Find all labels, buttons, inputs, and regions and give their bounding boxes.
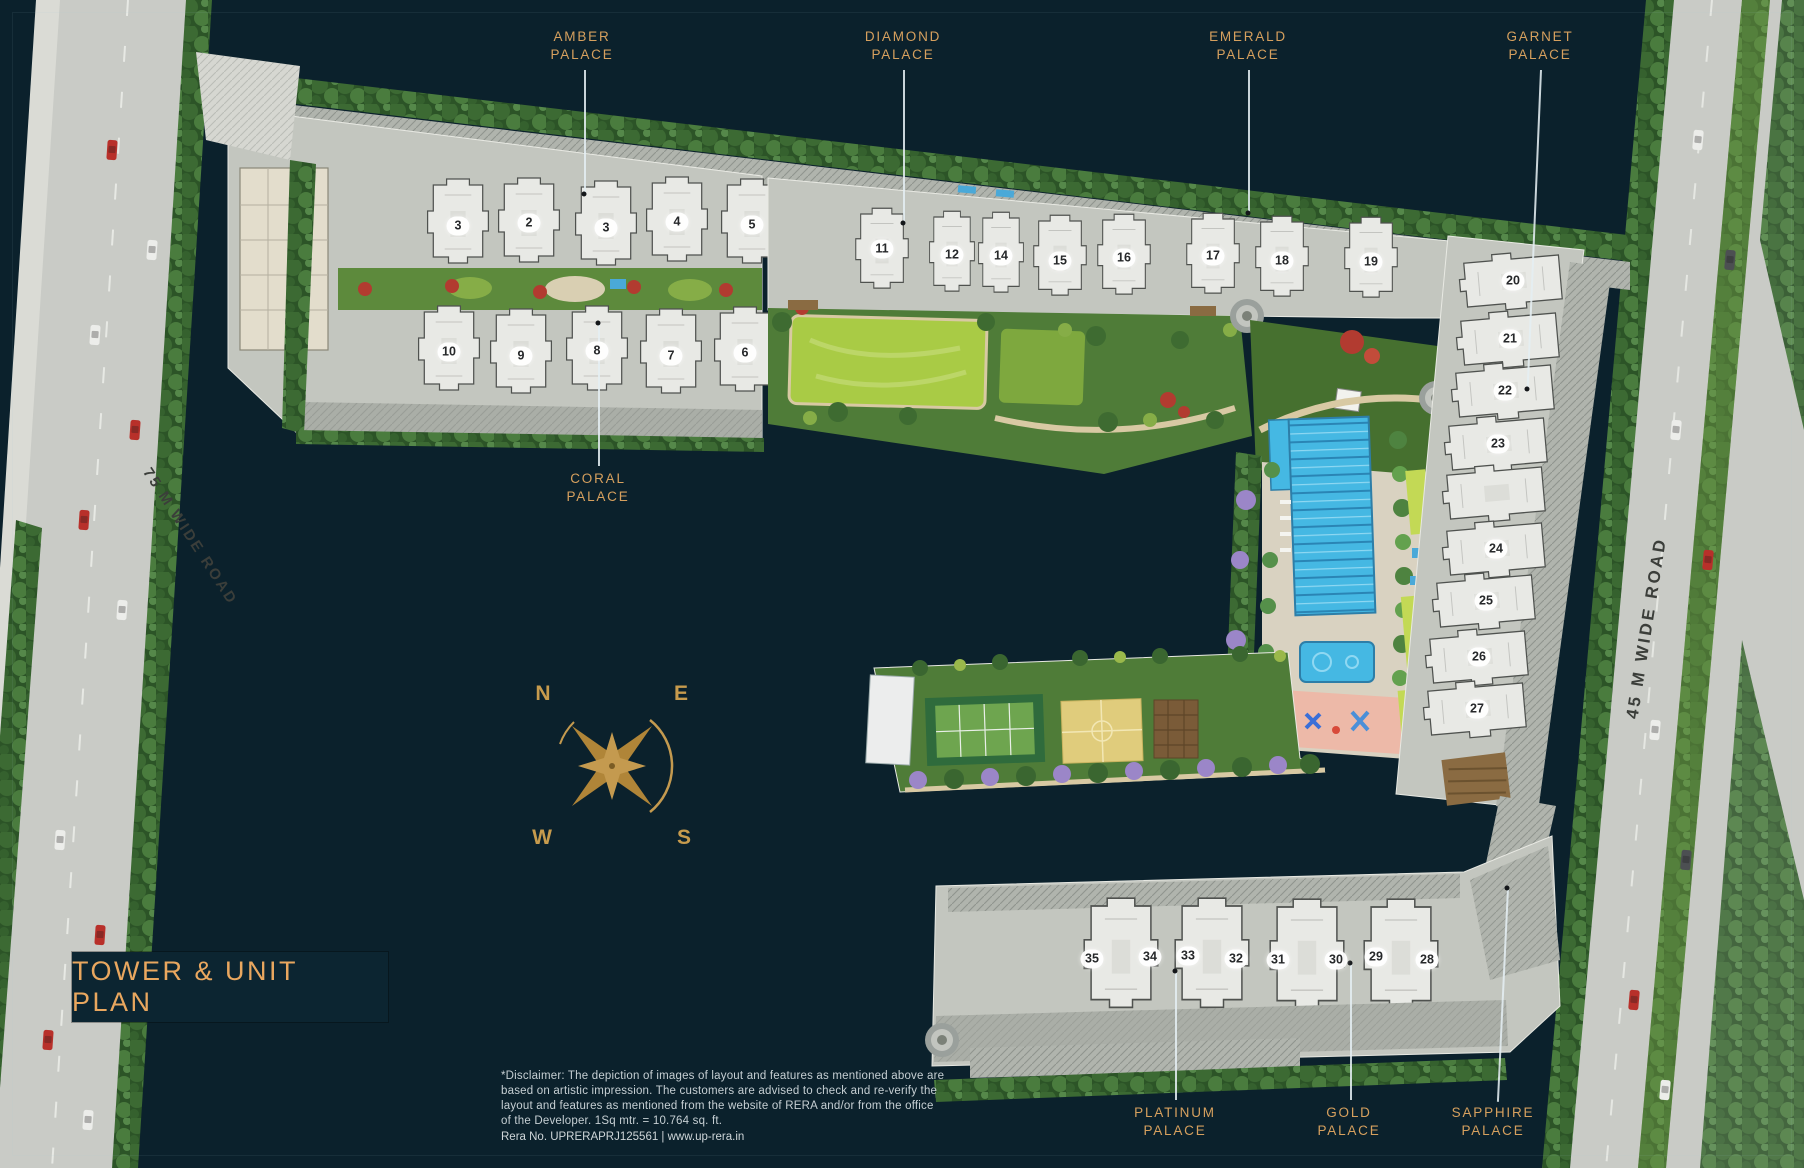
tower-number-badge: 5	[741, 216, 764, 235]
palace-type: PALACE	[1506, 46, 1573, 64]
compass-rose	[560, 720, 672, 812]
palace-label-diamond: DIAMOND PALACE	[865, 28, 941, 63]
palace-label-sapphire: SAPPHIRE PALACE	[1452, 1104, 1535, 1139]
leader-dot-sapphire	[1505, 886, 1510, 891]
tower-number-badge: 26	[1468, 648, 1491, 667]
palace-type: PALACE	[550, 46, 613, 64]
palace-name: CORAL	[566, 470, 629, 488]
tower-number-badge: 25	[1475, 592, 1498, 611]
leader-line-emerald	[1248, 70, 1250, 212]
leader-line-diamond	[903, 70, 905, 222]
site-plan-poster: AMBER PALACE DIAMOND PALACE EMERALD PALA…	[0, 0, 1804, 1168]
leader-dot-diamond	[901, 221, 906, 226]
tower-number-badge: 12	[941, 246, 964, 265]
tower-number-badge: 6	[734, 344, 757, 363]
palace-name: PLATINUM	[1134, 1104, 1216, 1122]
tower-number-badge: 23	[1487, 435, 1510, 454]
tower-number-badge: 15	[1049, 252, 1072, 271]
tower-number-badge: 24	[1485, 540, 1508, 559]
east-road-graphic	[1542, 0, 1804, 1168]
tower-number-badge: 3	[447, 217, 470, 236]
leader-line-platinum	[1175, 972, 1177, 1100]
palace-name: EMERALD	[1209, 28, 1287, 46]
tower-number-badge: 30	[1325, 951, 1348, 970]
palace-label-gold: GOLD PALACE	[1317, 1104, 1380, 1139]
tower-number-badge: 20	[1502, 272, 1525, 291]
palace-label-emerald: EMERALD PALACE	[1209, 28, 1287, 63]
leader-dot-garnet	[1525, 387, 1530, 392]
tower-number-badge: 14	[990, 247, 1013, 266]
palace-type: PALACE	[1209, 46, 1287, 64]
palace-label-amber: AMBER PALACE	[550, 28, 613, 63]
palace-type: PALACE	[1134, 1122, 1216, 1140]
palace-type: PALACE	[1452, 1122, 1535, 1140]
palace-name: GARNET	[1506, 28, 1573, 46]
tower-number-badge: 4	[666, 213, 689, 232]
tower-number-badge: 28	[1416, 951, 1439, 970]
tower-number-badge: 33	[1177, 947, 1200, 966]
rera-registration-text: Rera No. UPRERAPRJ125561 | www.up-rera.i…	[501, 1131, 744, 1143]
page-title: TOWER & UNIT PLAN	[72, 956, 388, 1018]
disclaimer-line: *Disclaimer: The depiction of images of …	[501, 1069, 944, 1084]
tower-number-badge: 27	[1466, 700, 1489, 719]
palace-name: GOLD	[1317, 1104, 1380, 1122]
palace-name: SAPPHIRE	[1452, 1104, 1535, 1122]
palace-name: DIAMOND	[865, 28, 941, 46]
tower-number-badge: 21	[1499, 330, 1522, 349]
tower-number-badge: 16	[1113, 249, 1136, 268]
palace-label-platinum: PLATINUM PALACE	[1134, 1104, 1216, 1139]
palace-label-garnet: GARNET PALACE	[1506, 28, 1573, 63]
leader-line-gold	[1350, 964, 1352, 1100]
palace-type: PALACE	[1317, 1122, 1380, 1140]
tower-number-badge: 8	[586, 342, 609, 361]
leader-dot-platinum	[1173, 969, 1178, 974]
leader-dot-amber	[582, 192, 587, 197]
title-box: TOWER & UNIT PLAN	[72, 952, 388, 1022]
palace-type: PALACE	[566, 488, 629, 506]
leader-line-amber	[584, 70, 586, 193]
palace-label-coral: CORAL PALACE	[566, 470, 629, 505]
tower-number-badge: 31	[1267, 951, 1290, 970]
tower-number-badge: 7	[660, 347, 683, 366]
tower-number-badge: 17	[1202, 247, 1225, 266]
tower-number-badge: 32	[1225, 950, 1248, 969]
compass-east-label: E	[674, 682, 688, 706]
tower-number-badge: 35	[1081, 950, 1104, 969]
tower-number-badge: 11	[871, 240, 894, 259]
tower-number-badge: 3	[595, 219, 618, 238]
palace-type: PALACE	[865, 46, 941, 64]
disclaimer-line: layout and features as mentioned from th…	[501, 1099, 944, 1114]
tower-number-badge: 2	[518, 214, 541, 233]
tower-number-badge: 34	[1139, 948, 1162, 967]
disclaimer-line: based on artistic impression. The custom…	[501, 1084, 944, 1099]
tower-number-badge: 9	[510, 347, 533, 366]
tower-number-badge: 29	[1365, 948, 1388, 967]
leader-dot-coral	[596, 321, 601, 326]
tower-number-badge: 10	[438, 343, 461, 362]
tower-number-badge: 19	[1360, 253, 1383, 272]
tower-number-badge: 18	[1271, 252, 1294, 271]
disclaimer-line: of the Developer. 1Sq mtr. = 10.764 sq. …	[501, 1114, 944, 1129]
palace-name: AMBER	[550, 28, 613, 46]
compass-north-label: N	[535, 682, 550, 706]
tower-number-badge: 22	[1494, 382, 1517, 401]
disclaimer-text: *Disclaimer: The depiction of images of …	[501, 1069, 944, 1129]
compass-west-label: W	[532, 826, 552, 850]
leader-dot-emerald	[1246, 211, 1251, 216]
compass-south-label: S	[677, 826, 691, 850]
leader-dot-gold	[1348, 961, 1353, 966]
